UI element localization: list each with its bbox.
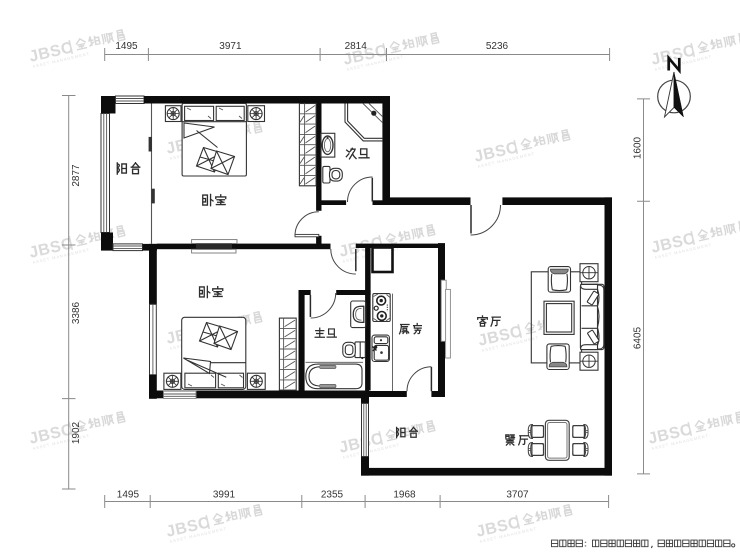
svg-text:1902: 1902 bbox=[71, 421, 82, 444]
svg-text:3971: 3971 bbox=[219, 41, 242, 52]
svg-text:2355: 2355 bbox=[321, 490, 344, 501]
svg-text:6405: 6405 bbox=[633, 326, 644, 349]
svg-text:1600: 1600 bbox=[633, 136, 644, 159]
svg-text:3386: 3386 bbox=[71, 301, 82, 324]
svg-text:3707: 3707 bbox=[506, 490, 529, 501]
svg-text:2814: 2814 bbox=[345, 41, 368, 52]
svg-text:1495: 1495 bbox=[115, 41, 138, 52]
svg-text:5236: 5236 bbox=[486, 41, 509, 52]
svg-text:1495: 1495 bbox=[117, 490, 140, 501]
svg-text:2877: 2877 bbox=[71, 164, 82, 187]
svg-text:3991: 3991 bbox=[213, 490, 236, 501]
svg-text:1968: 1968 bbox=[393, 490, 416, 501]
